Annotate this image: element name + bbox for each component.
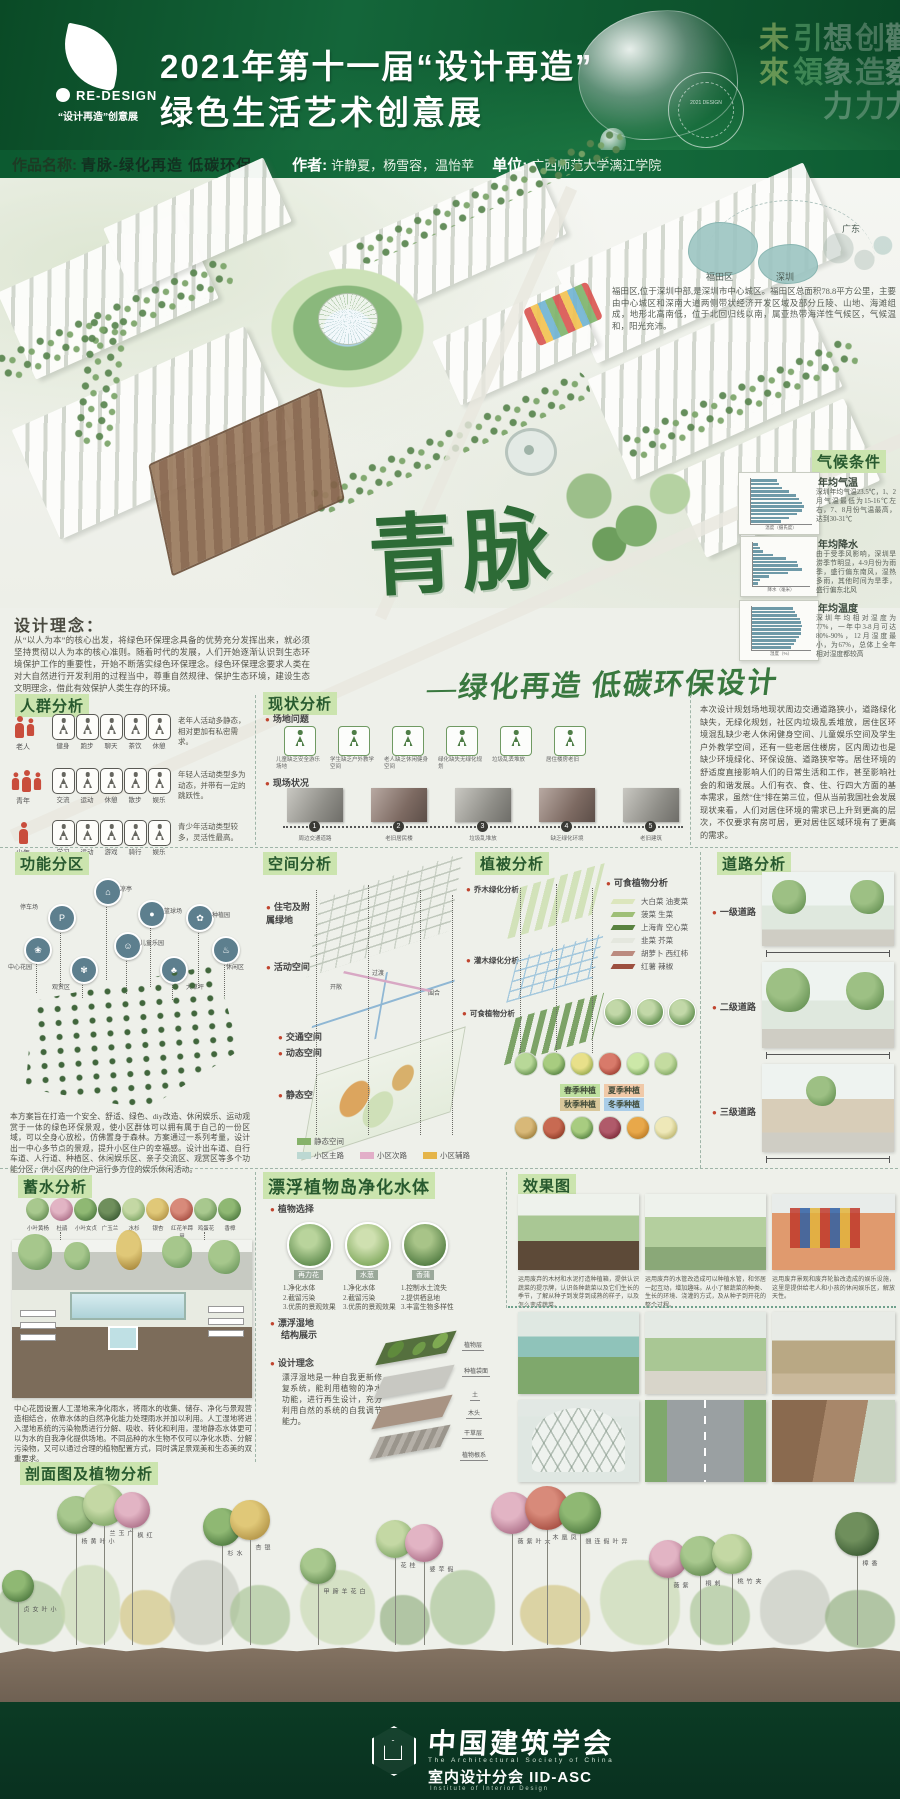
- climate-sec3-text: 深圳年均相对湿度为77%，一年中3-8月可达80%-90%，12月湿度最小，为6…: [816, 614, 896, 659]
- watercolor-tree: [120, 1590, 175, 1645]
- plant-photo-typha: [402, 1222, 448, 1268]
- author-label: 作者:: [292, 154, 327, 175]
- tree-photo: [98, 1198, 121, 1221]
- plant-label: 小叶黄杨: [79, 1538, 115, 1545]
- branch-name-en: Institute of Interior Design: [430, 1786, 549, 1792]
- fountain-plaza: [505, 428, 557, 476]
- sport-icon: [77, 769, 98, 793]
- edible-plants-title: 可食植物分析: [606, 876, 668, 889]
- zone-node-icon: ●: [138, 900, 166, 928]
- activity-card: [100, 820, 123, 846]
- watercolor-tree: [170, 1560, 240, 1645]
- activity-card: [148, 714, 171, 740]
- climate-sec2-text: 由于受季风影响，深圳旱涝季节明显，4-9月份为雨季，盛行偏东南风，湿热多雨，其他…: [816, 550, 896, 595]
- activity-card: [148, 768, 171, 794]
- plant3-benefits: 1.控制水土流失2.提供栖息地3.丰富生物多样性: [401, 1284, 457, 1313]
- lattice-dome: [318, 293, 378, 345]
- work-info-bar: 作品名称: 青脉-绿化再造 低碳环保 作者: 许静夏，杨雪容，温怡苹 单位: 广…: [0, 150, 900, 178]
- game-icon: [101, 821, 122, 845]
- floating-island-heading: 漂浮植物岛净化水体: [263, 1172, 435, 1199]
- watercolor-tree: [60, 1565, 120, 1645]
- zone-node-icon: ✾: [70, 956, 98, 984]
- profile-heading: 剖面图及植物分析: [20, 1462, 158, 1485]
- legend-auxiliary-road: 小区辅路: [423, 1150, 470, 1161]
- zone-node-icon: P: [48, 904, 76, 932]
- exhibition-title-line2: 绿色生活艺术创意展: [160, 86, 484, 134]
- issue-icon-card: [554, 726, 586, 756]
- layer-plants: [375, 1331, 456, 1366]
- plant-selection-label: 植物选择: [270, 1202, 314, 1215]
- site-photo: [539, 788, 595, 822]
- tree-photo: [218, 1198, 241, 1221]
- floating-concept-label: 设计理念: [270, 1356, 314, 1369]
- tree-photo: [170, 1198, 193, 1221]
- legend-static-space: 静态空间: [297, 1136, 344, 1147]
- road-level3-label: 三级道路: [712, 1105, 756, 1118]
- leaf-logo-dot: [56, 88, 70, 102]
- map-label-province: 广东: [842, 222, 860, 235]
- climate-sec3-title: 年均温度: [818, 600, 858, 615]
- plant-label: 香樟: [860, 1560, 878, 1567]
- rest-icon: [149, 715, 170, 739]
- status-paragraph: 本次设计规划场地现状周边交通道路狭小，道路绿化缺失，无绿化规划，社区内垃圾乱丢堆…: [700, 704, 896, 843]
- zone-node-icon: ☺: [114, 932, 142, 960]
- climate-heading: 气候条件: [812, 450, 886, 473]
- design-concept-heading: 设计理念：: [14, 612, 104, 636]
- zoning-plan-diagram: [13, 960, 248, 1120]
- watermark-observation: 觀察力: [874, 22, 900, 124]
- project-title-calligraphy: 青脉: [365, 477, 559, 614]
- plant-label: 假苹婆: [427, 1566, 454, 1573]
- world-map: [820, 228, 894, 286]
- activity-card: [76, 768, 99, 794]
- family-icon: [10, 770, 43, 799]
- watercolor-tree: [230, 1585, 290, 1645]
- site-issues-label: 场地问题: [265, 712, 309, 725]
- zone-node-icon: ♨: [212, 936, 240, 964]
- plant-label: 刺桐: [703, 1580, 721, 1587]
- brand-name: RE-DESIGN: [76, 88, 157, 103]
- plant-label: 紫薇: [671, 1582, 689, 1589]
- issue-icon-card: [284, 726, 316, 756]
- plant-label: 水杉: [225, 1550, 243, 1557]
- site-photo: [287, 788, 343, 822]
- plant-label: 白花羊蹄甲: [321, 1588, 366, 1595]
- adults-note: 年轻人活动类型多为动态，并带有一定的跳跃性。: [178, 770, 252, 802]
- plant-photo-scirpus: [345, 1222, 391, 1268]
- authors: 许静夏，杨雪容，温怡苹: [331, 155, 474, 174]
- activity-card: [76, 820, 99, 846]
- road-level1-label: 一级道路: [712, 905, 756, 918]
- vegetable-photos-row1: [514, 1052, 678, 1076]
- temperature-chart: 温度（摄氏度）: [738, 472, 820, 535]
- plant-photo-thalia: [287, 1222, 333, 1268]
- plant2-benefits: 1.净化水体2.截留污染3.优质的景观效果: [343, 1284, 399, 1313]
- tea-icon: [125, 715, 146, 739]
- zone-node-icon: ❀: [24, 936, 52, 964]
- climate-sec1-title: 年均气温: [818, 474, 858, 489]
- plant1-benefits: 1.净化水体2.截留污染3.优质的景观效果: [283, 1284, 339, 1313]
- plant-label: 银杏: [253, 1544, 271, 1551]
- layer-substrate: [373, 1365, 454, 1400]
- tree-photo: [122, 1198, 145, 1221]
- water-storage-paragraph: 中心花园设置人工湿地来净化雨水，将雨水的收集、储存、净化与景观营造相结合，依靠水…: [14, 1404, 252, 1464]
- design-concept-body: 从“以人为本”的核心出发，将绿色环保理念具备的优势充分发挥出来，就必须坚持贯彻以…: [14, 634, 310, 694]
- watercolor-tree: [430, 1570, 495, 1645]
- chat-icon: [101, 715, 122, 739]
- issue-icon-card: [446, 726, 478, 756]
- activity-card: [124, 714, 147, 740]
- brand-tagline: “设计再造”创意展: [58, 108, 138, 123]
- activity-card: [76, 714, 99, 740]
- tree-photo: [50, 1198, 73, 1221]
- activity-card: [124, 768, 147, 794]
- vegetable-photos-row2: [514, 1116, 678, 1140]
- activity-card: [52, 768, 75, 794]
- project-subtitle-calligraphy: —绿化再造 低碳环保设计: [425, 659, 781, 707]
- plant-label: 凤凰木: [550, 1534, 577, 1541]
- issue-icon-card: [500, 726, 532, 756]
- zone-node-icon: ⌂: [94, 878, 122, 906]
- watercolor-tree: [825, 1590, 895, 1648]
- zone-node-icon: ✿: [186, 904, 214, 932]
- exhibition-title-line1: 2021年第十一届“设计再造”: [160, 40, 593, 88]
- vegetation-heading: 植被分析: [475, 852, 549, 875]
- climate-sec2-title: 年均降水: [818, 536, 858, 551]
- header-banner: RE-DESIGN “设计再造”创意展 2021年第十一届“设计再造” 绿色生活…: [0, 0, 900, 150]
- site-photo: [623, 788, 679, 822]
- leaf-logo-icon: [57, 23, 126, 92]
- plant-label: 红枫: [135, 1532, 153, 1539]
- society-name-cn: 中国建筑学会: [427, 1722, 616, 1762]
- watercolor-tree: [380, 1595, 430, 1645]
- jogging-icon: [77, 715, 98, 739]
- render-greenhouse-dome: [518, 1400, 639, 1482]
- render-park-pond: [518, 1312, 639, 1394]
- render-pergola-corridor: [772, 1400, 895, 1482]
- tree-photo: [26, 1198, 49, 1221]
- communication-icon: [53, 769, 74, 793]
- layer-soil: [371, 1395, 452, 1430]
- tree-photo: [146, 1198, 169, 1221]
- layer-roots: [369, 1425, 450, 1460]
- road-level2-section: [762, 962, 894, 1048]
- map-label-district: 福田区: [706, 270, 733, 283]
- elderly-icon: [14, 716, 36, 745]
- activity-card: [124, 820, 147, 846]
- activity-card: [52, 820, 75, 846]
- wetland-section-render: [12, 1240, 252, 1398]
- farmer-photos: [604, 998, 696, 1026]
- space-analysis-heading: 空间分析: [263, 852, 337, 875]
- activity-card: [148, 820, 171, 846]
- rendering-pipe-garden: [645, 1194, 766, 1270]
- activity-card: [100, 714, 123, 740]
- precipitation-chart: 降水（毫米）: [740, 536, 818, 597]
- road-level3-section: [762, 1064, 894, 1152]
- legend-main-road: 小区主路: [297, 1150, 344, 1161]
- fitness-icon: [53, 715, 74, 739]
- function-zoning-heading: 功能分区: [15, 852, 89, 875]
- rendering-planting-boxes: [518, 1194, 639, 1270]
- watercolor-tree: [760, 1570, 830, 1645]
- site-photo: [455, 788, 511, 822]
- floating-concept-text: 漂浮湿地是一种自我更新修复系统，能利用植物的净水功能，进行再生设计，充分利用自然…: [282, 1372, 382, 1427]
- plant-label: 桂花: [398, 1562, 416, 1569]
- poster: RE-DESIGN “设计再造”创意展 2021年第十一届“设计再造” 绿色生活…: [0, 0, 900, 1799]
- rest-icon: [101, 769, 122, 793]
- plant-label: 异叶假连翘: [583, 1538, 628, 1545]
- branch-name: 室内设计分会 IID-ASC: [428, 1766, 592, 1787]
- section-ground: [0, 1642, 900, 1704]
- elderly-note: 老年人活动多静态，相对更加有私密需求。: [178, 716, 252, 748]
- site-photo: [371, 788, 427, 822]
- road-level1-section: [762, 872, 894, 946]
- activity-card: [52, 714, 75, 740]
- site-location-description: 福田区,位于深圳中部,是深圳市中心城区。福田区总面积78.8平方公里，主要由中心…: [612, 286, 896, 332]
- sport-icon: [77, 821, 98, 845]
- legend-secondary-road: 小区次路: [360, 1150, 407, 1161]
- garden-area: [562, 466, 697, 566]
- society-name-en: The Architectural Society of China: [428, 1757, 614, 1764]
- map-label-city: 深圳: [776, 270, 794, 283]
- entertainment-icon: [149, 769, 170, 793]
- seal-text: 2021 DESIGN: [676, 100, 736, 106]
- humidity-chart: 湿度（%）: [739, 600, 819, 661]
- youth-note: 青少年活动类型较多，灵活性最高。: [178, 822, 252, 843]
- plant-label: 广玉兰: [107, 1530, 134, 1537]
- render-road-aerial: [645, 1400, 766, 1482]
- work-name: 青脉-绿化再造 低碳环保: [81, 154, 252, 175]
- plant-label: 夹竹桃: [735, 1578, 762, 1585]
- function-zoning-paragraph: 本方案旨在打造一个安全、舒适、绿色、diy改造、休闲娱乐、运动观赏于一体的绿色环…: [10, 1112, 250, 1175]
- study-icon: [53, 821, 74, 845]
- tree-photo: [194, 1198, 217, 1221]
- cycling-icon: [125, 821, 146, 845]
- exhibition-seal-icon: [668, 72, 744, 148]
- entertainment-icon: [149, 821, 170, 845]
- tree-photo: [74, 1198, 97, 1221]
- road-level2-label: 二级道路: [712, 1000, 756, 1013]
- activity-card: [100, 768, 123, 794]
- climate-sec1-text: 深圳年均气温23.5℃，1、2月气温最低为15-16℃左右，7、8月份气温最高，…: [816, 488, 896, 524]
- work-name-label: 作品名称:: [12, 154, 77, 175]
- plant-label: 小叶女贞: [21, 1606, 57, 1613]
- render-street-trees: [645, 1312, 766, 1394]
- rendering-playground: [772, 1194, 895, 1270]
- issue-icon-card: [392, 726, 424, 756]
- walk-icon: [125, 769, 146, 793]
- issue-icon-card: [338, 726, 370, 756]
- render-boardwalk: [772, 1312, 895, 1394]
- water-storage-heading: 蓄水分析: [18, 1175, 92, 1198]
